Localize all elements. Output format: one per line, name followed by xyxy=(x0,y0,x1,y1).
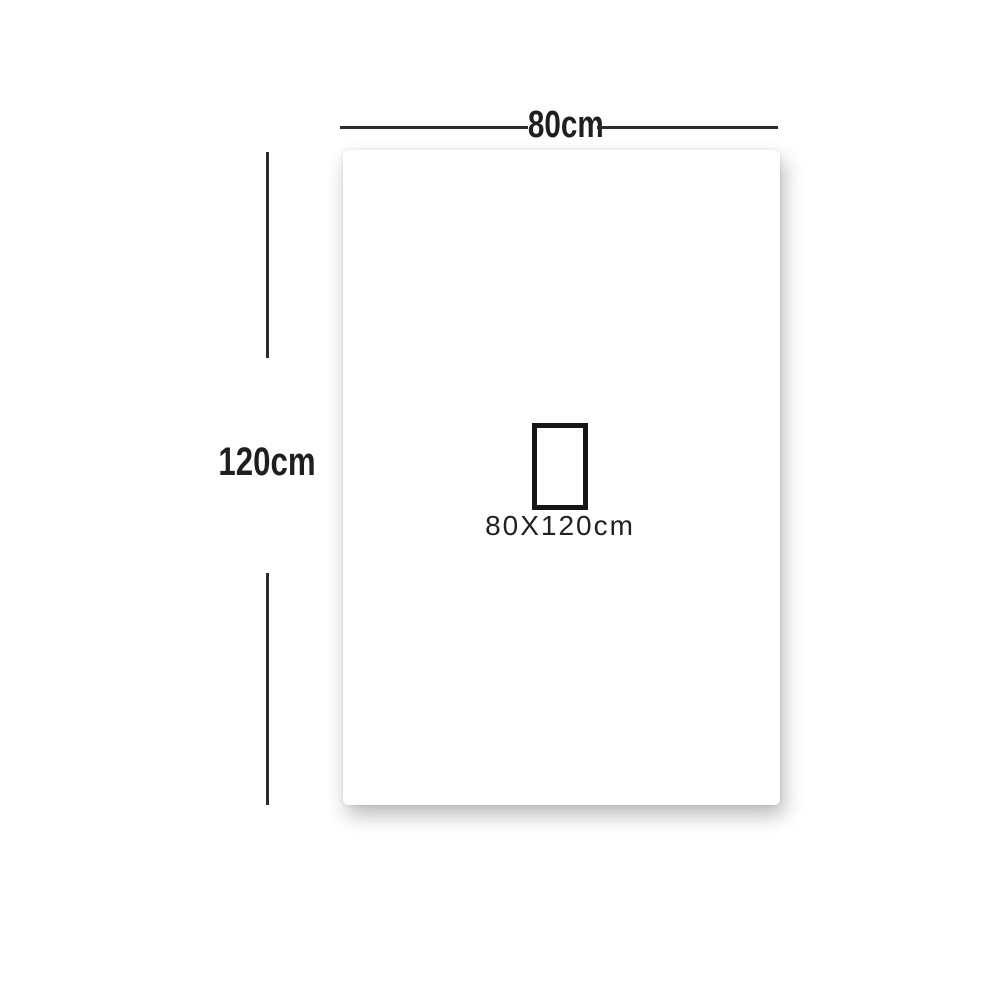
width-dimension-line-left xyxy=(340,126,528,129)
size-text-label: 80X120cm xyxy=(450,511,670,542)
height-dimension-line-top xyxy=(266,152,269,358)
width-dimension-label: 80cm xyxy=(528,106,598,144)
width-dimension-line-right xyxy=(597,126,778,129)
size-rectangle-icon xyxy=(532,423,588,510)
product-size-diagram: 80cm 120cm 80X120cm xyxy=(0,0,1000,1000)
height-dimension-line-bottom xyxy=(266,573,269,805)
height-dimension-label: 120cm xyxy=(211,442,323,482)
